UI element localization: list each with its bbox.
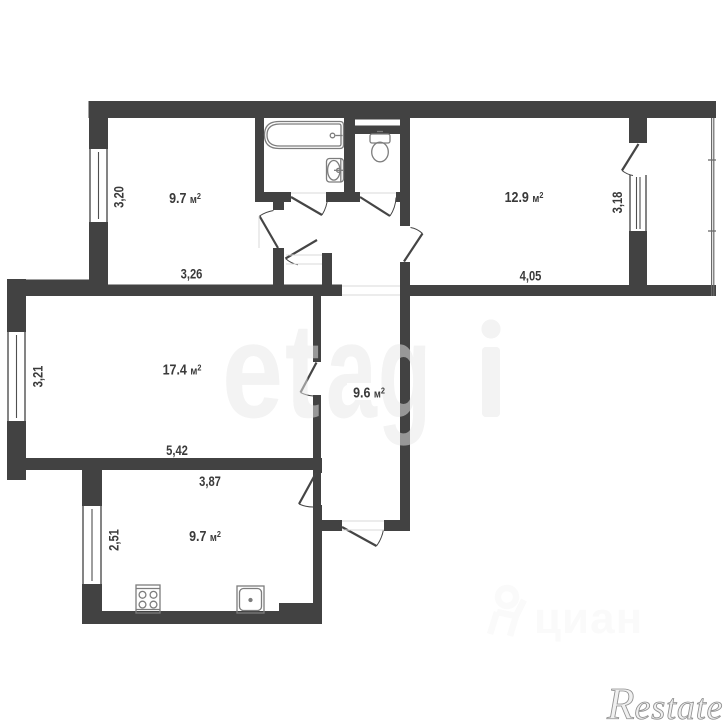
svg-text:4,05: 4,05	[520, 268, 542, 283]
svg-text:9.7 м2: 9.7 м2	[169, 190, 201, 206]
svg-text:5,42: 5,42	[166, 443, 188, 458]
svg-text:e: e	[222, 295, 283, 446]
svg-text:циан: циан	[534, 594, 643, 643]
svg-text:a: a	[326, 295, 378, 446]
svg-text:9.7 м2: 9.7 м2	[189, 528, 221, 544]
svg-text:3,26: 3,26	[181, 267, 203, 282]
svg-text:3,20: 3,20	[111, 186, 126, 208]
svg-text:3,21: 3,21	[30, 366, 45, 388]
svg-text:g: g	[378, 295, 431, 446]
svg-text:3,18: 3,18	[610, 192, 625, 214]
svg-text:2,51: 2,51	[106, 529, 121, 551]
svg-text:3,87: 3,87	[199, 474, 221, 489]
svg-text:9.6 м2: 9.6 м2	[353, 385, 385, 401]
svg-text:t: t	[285, 295, 320, 446]
